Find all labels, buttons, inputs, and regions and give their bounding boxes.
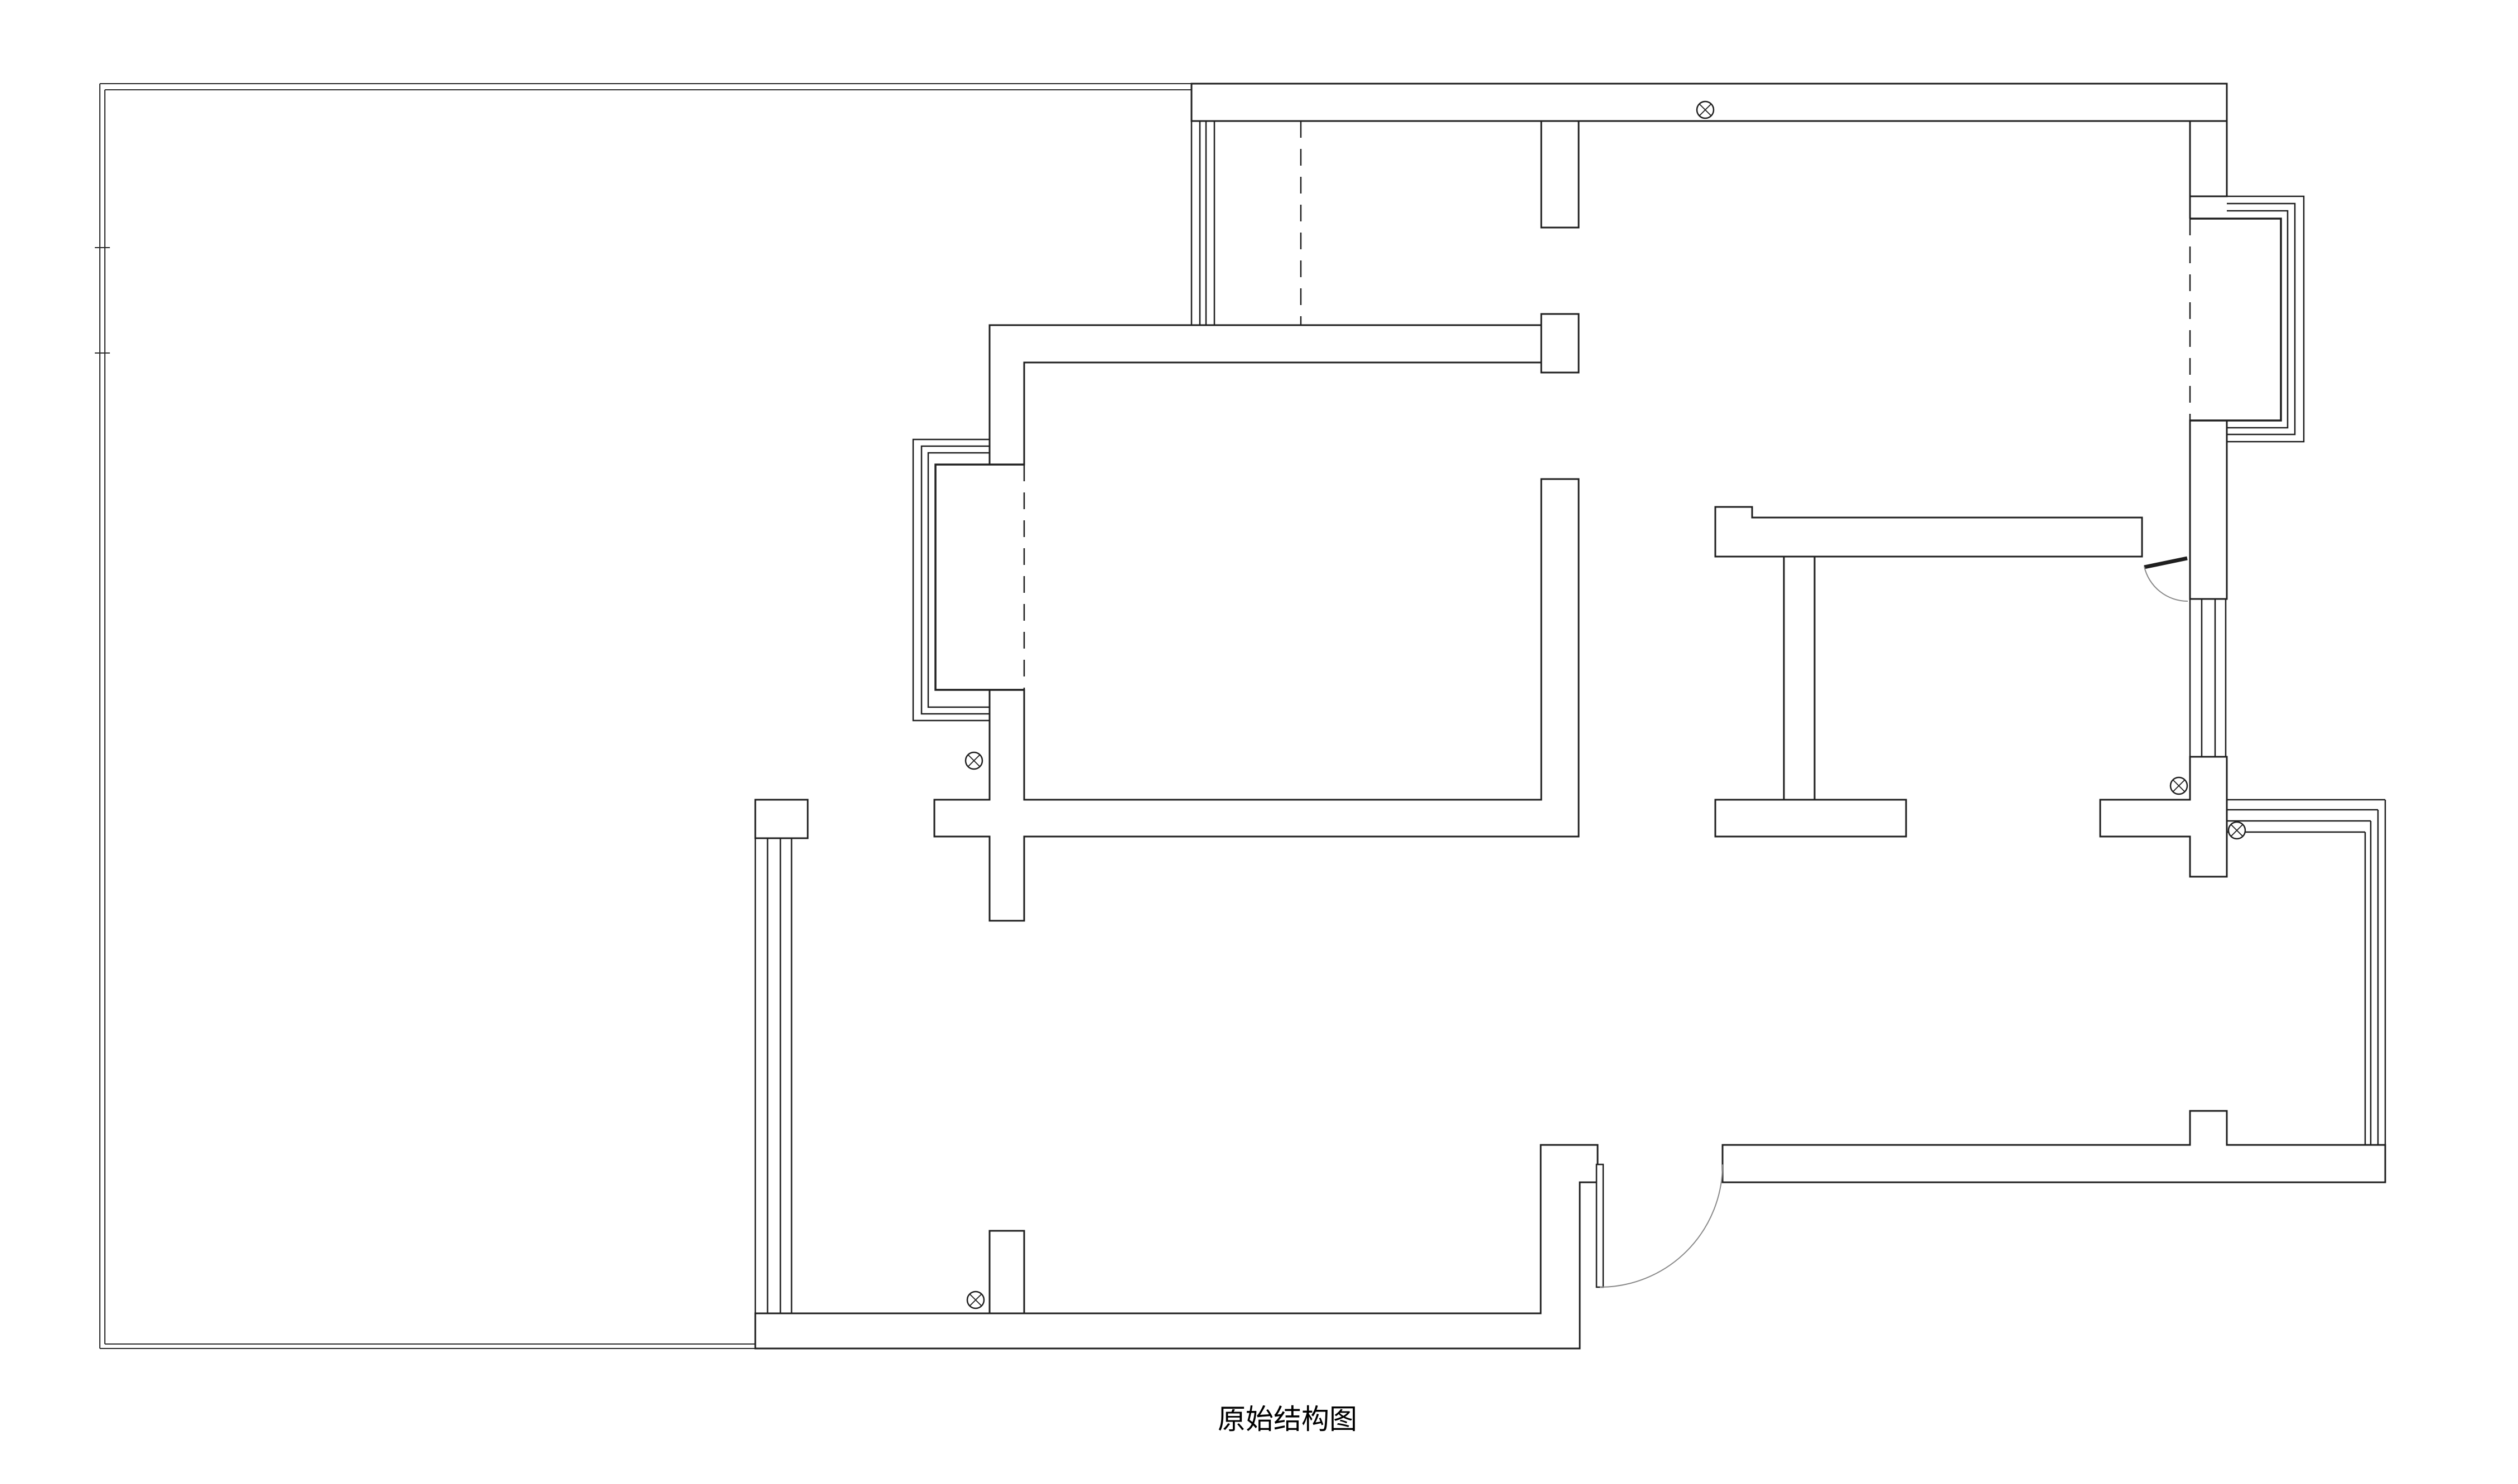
circle-x-symbol [967, 1292, 984, 1308]
kitchen-south-wall [990, 325, 1541, 465]
bay-windows [913, 196, 2304, 721]
north-wall [1192, 84, 2227, 196]
west-pier [755, 800, 808, 838]
west-bay-window [913, 439, 1024, 721]
southeast-cross-wall [2100, 757, 2227, 877]
walls [755, 84, 2385, 1348]
east-bay-window [2190, 196, 2304, 442]
bedroom-south-wall [1715, 507, 2142, 557]
bathroom-door-swing-arc [2144, 567, 2188, 601]
bathroom-west-wall [1784, 557, 1815, 800]
entry-door-leaf [1596, 1164, 1603, 1287]
drawing-title: 原始结构图 [1218, 1403, 1357, 1435]
central-wall-upper [1541, 121, 1579, 228]
east-wall-upper [2190, 121, 2227, 196]
east-wall-mid [2190, 420, 2227, 599]
bathroom-door [2144, 558, 2188, 601]
circle-x-symbol [2170, 777, 2187, 794]
floor-plan-drawing: 原始结构图 [0, 0, 2518, 1484]
central-wall-and-middle-band [934, 479, 1579, 921]
central-wall-short [1541, 314, 1579, 373]
entry-door [1596, 1164, 1723, 1287]
kitchen-window [1192, 121, 1214, 325]
west-stub-wall [990, 1231, 1024, 1313]
southeast-band-with-pier [1723, 1111, 2385, 1182]
bathroom-window [2190, 599, 2226, 757]
floor-plan-sheet: 原始结构图 [0, 0, 2518, 1484]
bathroom-south-block [1715, 800, 1906, 837]
circle-x-symbol [1697, 101, 1714, 118]
lower-left-window [755, 838, 792, 1313]
bathroom-door-leaf [2144, 558, 2187, 567]
symbols-layer [966, 101, 2245, 1308]
entry-wall-and-south-band [755, 1145, 1598, 1348]
terrace-border [95, 84, 1192, 1348]
entry-door-swing-arc [1600, 1164, 1723, 1287]
corner-window [2227, 800, 2385, 1182]
circle-x-symbol [2228, 822, 2245, 839]
circle-x-symbol [966, 752, 982, 769]
